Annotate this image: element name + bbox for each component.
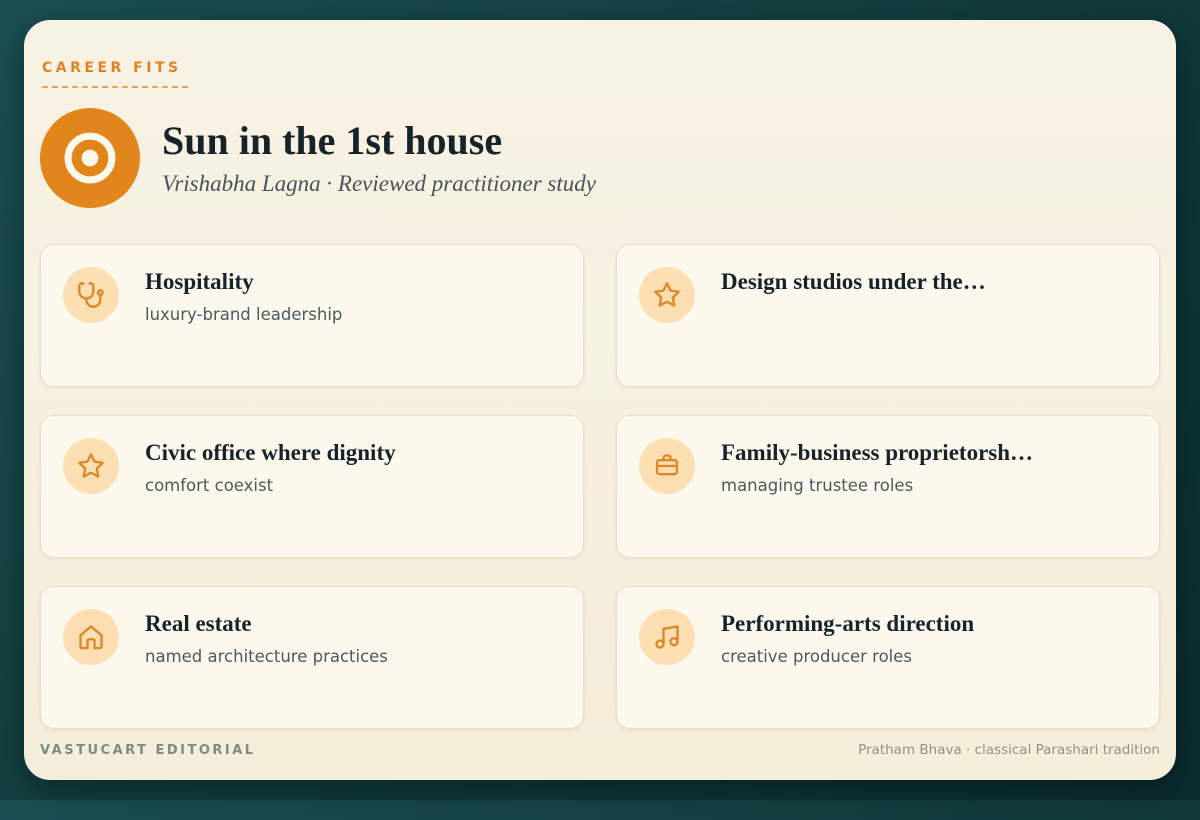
card-subtitle: comfort coexist xyxy=(145,476,396,495)
card-text: Design studios under the… xyxy=(721,267,986,305)
career-card-performing-arts[interactable]: Performing-arts direction creative produ… xyxy=(616,586,1160,729)
card-title: Civic office where dignity xyxy=(145,440,396,466)
music-note-icon xyxy=(639,609,695,665)
page-header: Sun in the 1st house Vrishabha Lagna · R… xyxy=(40,108,1160,208)
card-title: Real estate xyxy=(145,611,388,637)
page-subtitle: Vrishabha Lagna · Reviewed practitioner … xyxy=(162,171,596,197)
career-card-civic-office[interactable]: Civic office where dignity comfort coexi… xyxy=(40,415,584,558)
title-block: Sun in the 1st house Vrishabha Lagna · R… xyxy=(162,119,596,197)
career-card-hospitality[interactable]: Hospitality luxury-brand leadership xyxy=(40,244,584,387)
card-text: Real estate named architecture practices xyxy=(145,609,388,666)
card-title: Hospitality xyxy=(145,269,342,295)
home-icon xyxy=(63,609,119,665)
eyebrow-dashed-rule xyxy=(42,86,188,88)
page-title: Sun in the 1st house xyxy=(162,119,596,163)
stethoscope-icon xyxy=(63,267,119,323)
footer: VASTUCART EDITORIAL Pratham Bhava · clas… xyxy=(40,742,1160,780)
card-subtitle: named architecture practices xyxy=(145,647,388,666)
card-text: Family-business proprietorsh… managing t… xyxy=(721,438,1033,495)
card-subtitle: luxury-brand leadership xyxy=(145,305,342,324)
card-text: Performing-arts direction creative produ… xyxy=(721,609,974,666)
card-title: Design studios under the… xyxy=(721,269,986,295)
sun-icon xyxy=(40,108,140,208)
career-card-design-studios[interactable]: Design studios under the… xyxy=(616,244,1160,387)
card-text: Civic office where dignity comfort coexi… xyxy=(145,438,396,495)
brand-label: VASTUCART EDITORIAL xyxy=(40,743,256,758)
career-card-family-business[interactable]: Family-business proprietorsh… managing t… xyxy=(616,415,1160,558)
briefcase-icon xyxy=(639,438,695,494)
career-card-real-estate[interactable]: Real estate named architecture practices xyxy=(40,586,584,729)
card-subtitle: creative producer roles xyxy=(721,647,974,666)
editorial-card: CAREER FITS Sun in the 1st house Vrishab… xyxy=(24,20,1176,780)
footer-attribution: Pratham Bhava · classical Parashari trad… xyxy=(858,742,1160,758)
career-card-grid: Hospitality luxury-brand leadership Desi… xyxy=(40,244,1160,729)
card-text: Hospitality luxury-brand leadership xyxy=(145,267,342,324)
card-subtitle: managing trustee roles xyxy=(721,476,1033,495)
star-icon xyxy=(63,438,119,494)
card-title: Family-business proprietorsh… xyxy=(721,440,1033,466)
card-title: Performing-arts direction xyxy=(721,611,974,637)
eyebrow-label: CAREER FITS xyxy=(42,60,1160,76)
star-icon xyxy=(639,267,695,323)
